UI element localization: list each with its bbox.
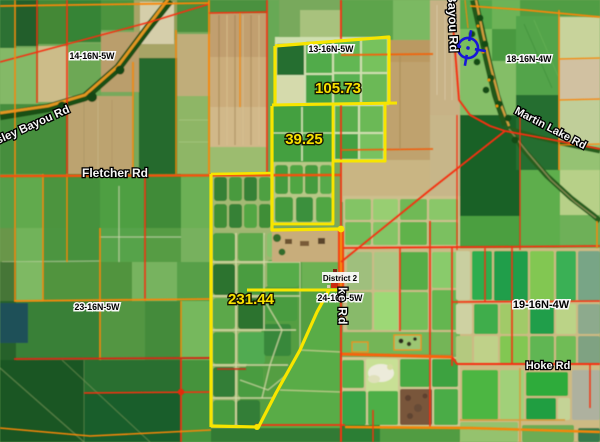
svg-text:Fletcher Rd: Fletcher Rd	[82, 166, 148, 180]
svg-text:231.44: 231.44	[228, 291, 275, 308]
svg-text:19-16N-4W: 19-16N-4W	[513, 299, 570, 311]
svg-text:105.73: 105.73	[315, 80, 361, 97]
svg-text:14-16N-5W: 14-16N-5W	[70, 51, 116, 61]
svg-text:18-16N-4W: 18-16N-4W	[507, 54, 553, 64]
svg-text:13-16N-5W: 13-16N-5W	[309, 44, 355, 54]
svg-text:District 2: District 2	[323, 274, 358, 283]
svg-text:Bayou Rd: Bayou Rd	[445, 0, 461, 52]
svg-text:Hoke Rd: Hoke Rd	[526, 360, 571, 372]
svg-text:23-16N-5W: 23-16N-5W	[75, 302, 121, 312]
svg-text:ke Rd: ke Rd	[336, 287, 350, 326]
svg-text:39.25: 39.25	[285, 131, 323, 148]
